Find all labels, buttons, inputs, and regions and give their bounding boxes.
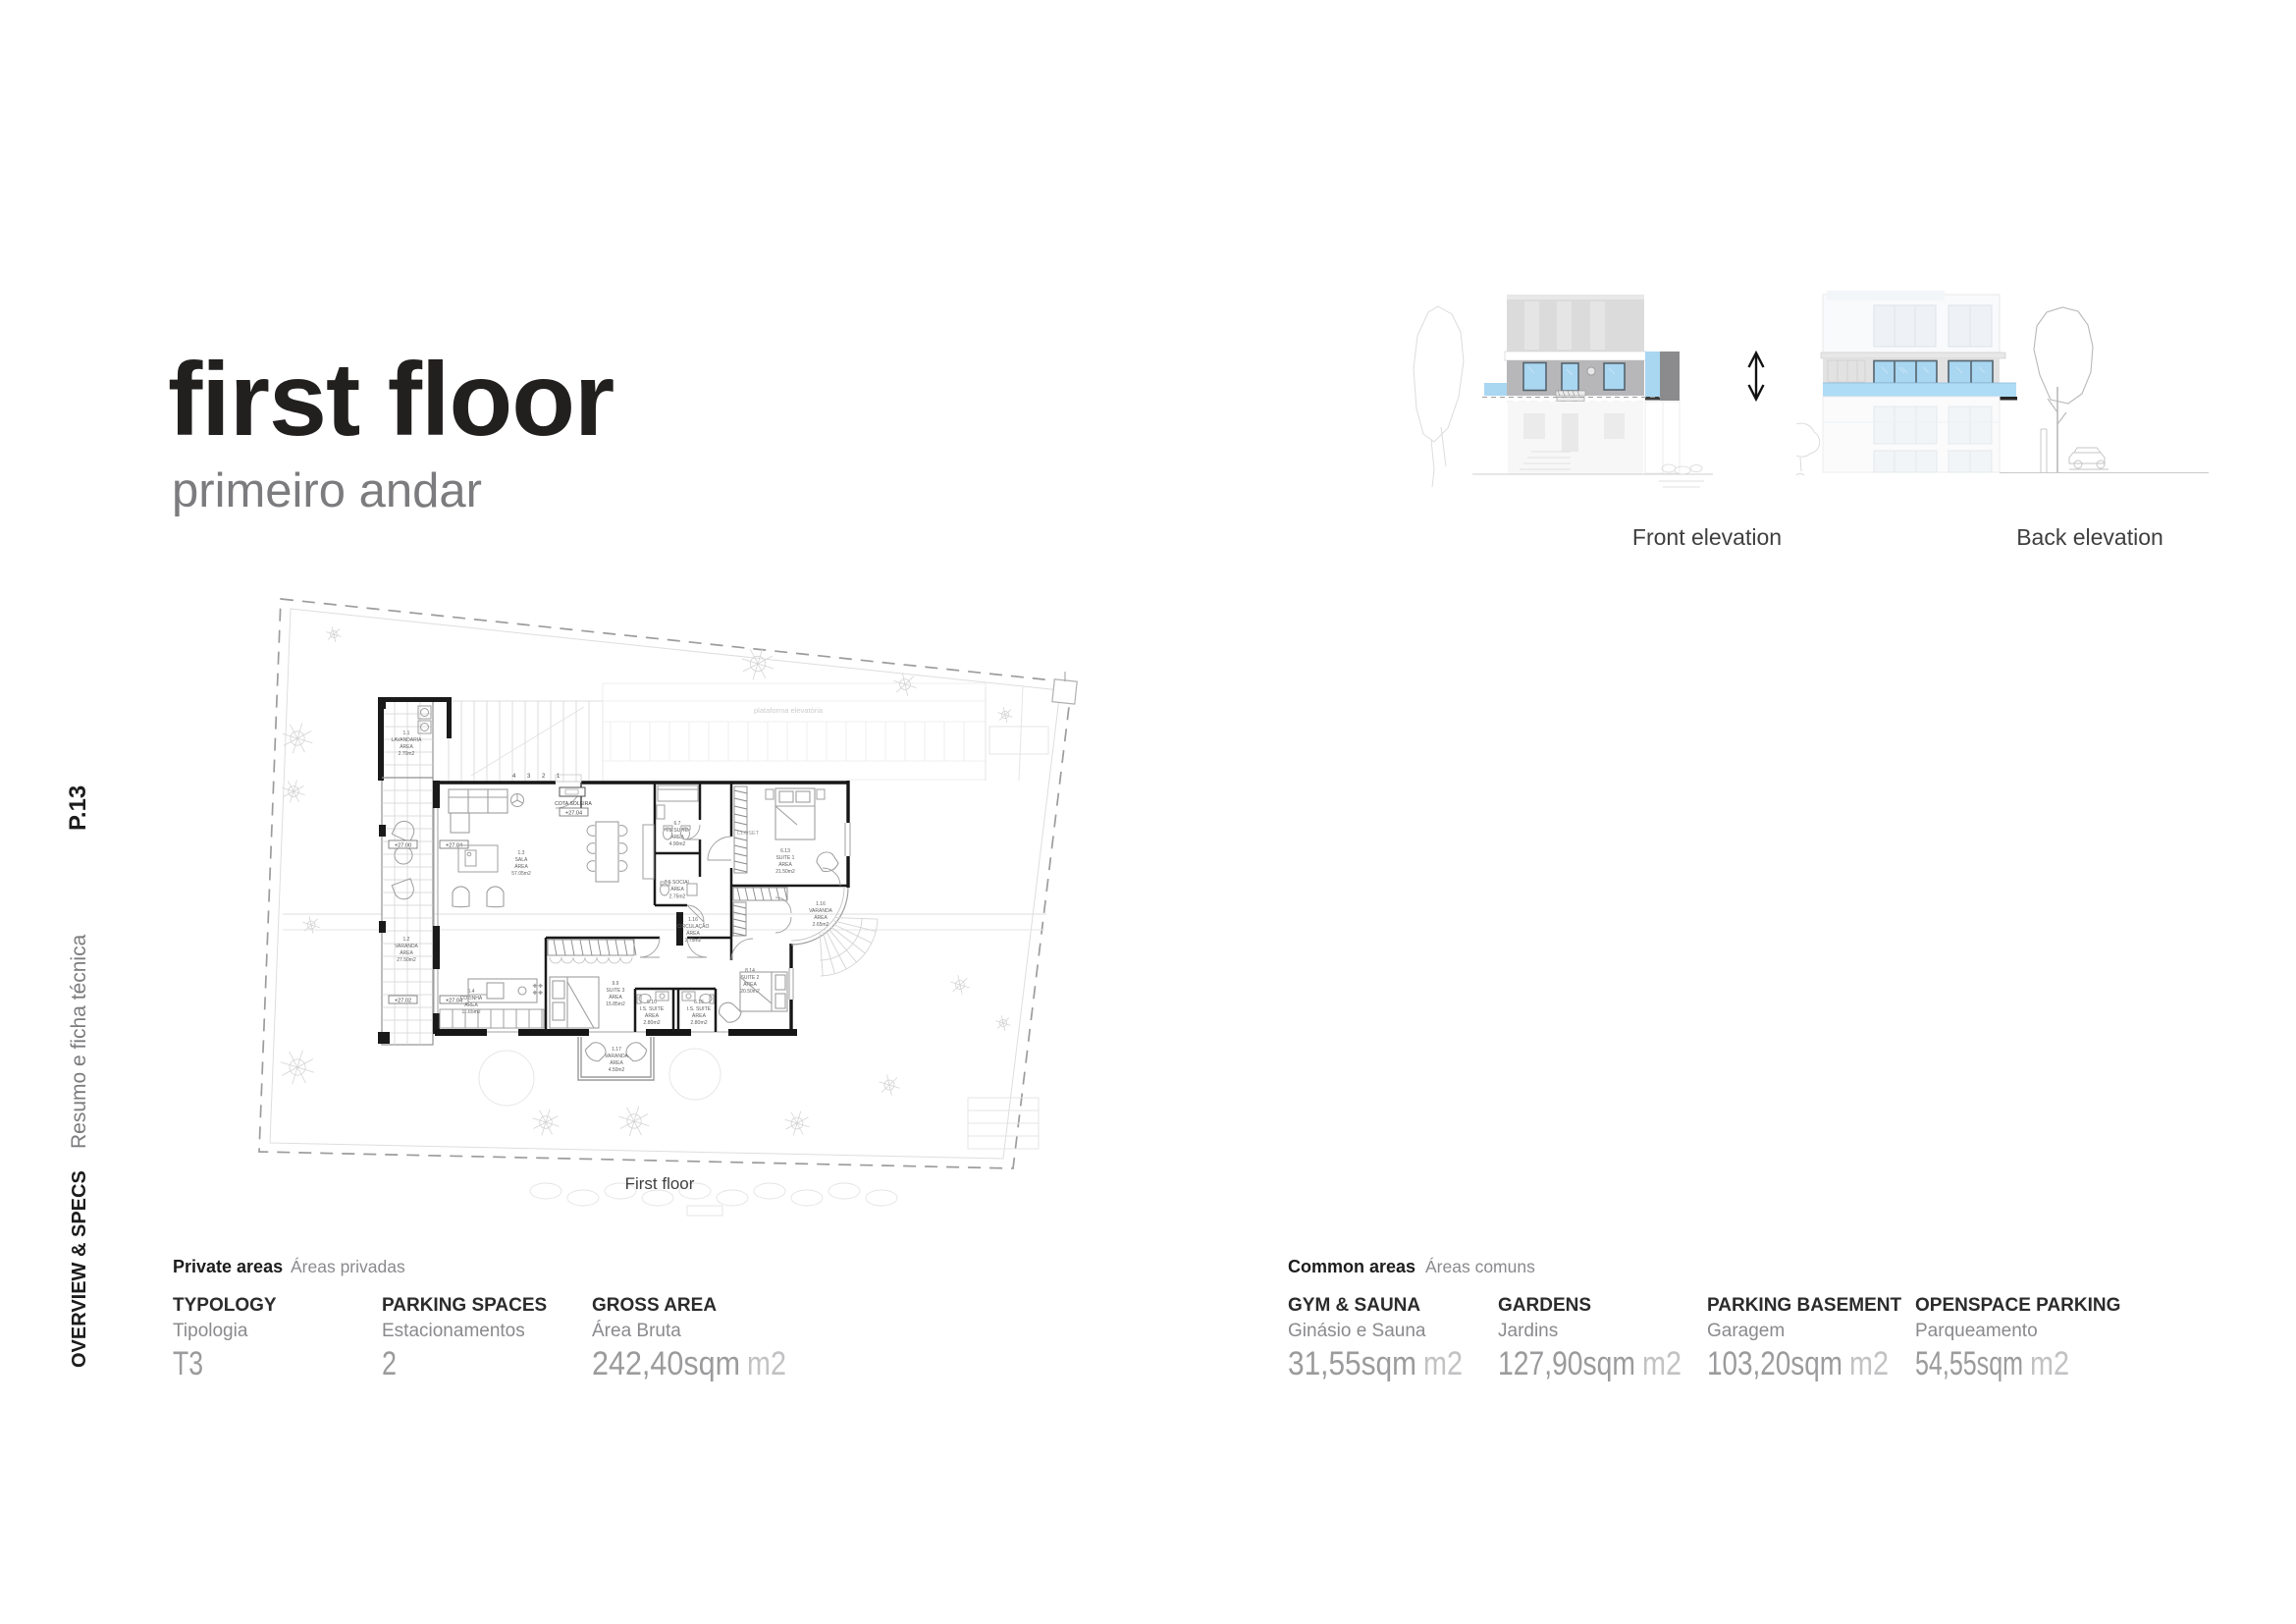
svg-text:COZINHA: COZINHA	[460, 996, 483, 1001]
svg-text:GROSS AREA: GROSS AREA	[592, 1295, 717, 1316]
svg-text:6.7: 6.7	[674, 821, 681, 827]
svg-text:ÁREA: ÁREA	[670, 886, 684, 893]
svg-text:SUITE 3: SUITE 3	[607, 988, 625, 994]
svg-text:Tipologia: Tipologia	[173, 1321, 248, 1341]
svg-text:2.80m2: 2.80m2	[643, 1020, 660, 1026]
svg-text:Áreas privadas: Áreas privadas	[291, 1257, 405, 1276]
svg-text:ÁREA: ÁREA	[778, 861, 792, 868]
svg-text:m2: m2	[1642, 1345, 1682, 1382]
svg-text:+ +: + +	[533, 990, 543, 997]
svg-text:m2: m2	[747, 1345, 786, 1382]
svg-text:PARKING SPACES: PARKING SPACES	[382, 1295, 547, 1316]
svg-text:2: 2	[382, 1345, 397, 1382]
svg-text:+27.02: +27.02	[395, 998, 411, 1003]
svg-text:VARANDA: VARANDA	[395, 944, 418, 949]
svg-text:8.14: 8.14	[745, 968, 755, 974]
svg-text:27.50m2: 27.50m2	[397, 957, 416, 963]
svg-text:first floor: first floor	[168, 342, 614, 458]
svg-text:First floor: First floor	[625, 1174, 695, 1193]
svg-text:VARANDA: VARANDA	[605, 1054, 628, 1059]
svg-text:OVERVIEW & SPECS: OVERVIEW & SPECS	[69, 1170, 90, 1368]
svg-text:4.90m2: 4.90m2	[669, 841, 686, 847]
svg-text:COTA SOLEIRA: COTA SOLEIRA	[555, 801, 592, 807]
svg-text:Front elevation: Front elevation	[1632, 524, 1782, 550]
svg-text:ÁREA: ÁREA	[645, 1012, 660, 1019]
svg-text:ÁREA: ÁREA	[670, 834, 684, 840]
svg-text:2.80m2: 2.80m2	[690, 1020, 707, 1026]
svg-text:2.65m2: 2.65m2	[813, 922, 829, 928]
svg-text:P.13: P.13	[65, 785, 91, 831]
svg-text:ÁREA: ÁREA	[686, 930, 700, 937]
svg-text:31,55sqm: 31,55sqm	[1288, 1345, 1416, 1382]
svg-text:OPENSPACE PARKING: OPENSPACE PARKING	[1915, 1295, 2120, 1316]
svg-text:Resumo e ficha técnica: Resumo e ficha técnica	[68, 934, 90, 1149]
svg-text:LAVANDARIA: LAVANDARIA	[392, 737, 423, 743]
svg-text:+ +: + +	[533, 983, 543, 990]
svg-text:127,90sqm: 127,90sqm	[1498, 1345, 1635, 1382]
svg-text:Private areas: Private areas	[173, 1257, 283, 1276]
svg-text:ÁREA: ÁREA	[692, 1012, 707, 1019]
svg-text:ÁREA: ÁREA	[610, 1059, 623, 1066]
svg-text:Parqueamento: Parqueamento	[1915, 1321, 2038, 1341]
svg-text:ÁREA: ÁREA	[400, 949, 413, 956]
svg-text:Back elevation: Back elevation	[2016, 524, 2163, 550]
svg-text:I.S. SUITE: I.S. SUITE	[687, 1006, 712, 1012]
svg-text:VARANDA: VARANDA	[809, 908, 832, 914]
svg-text:1.16: 1.16	[816, 901, 826, 907]
svg-text:PARKING BASEMENT: PARKING BASEMENT	[1707, 1295, 1901, 1316]
svg-text:2.75m2: 2.75m2	[669, 893, 686, 899]
svg-text:1.3: 1.3	[518, 850, 525, 856]
svg-text:1.1: 1.1	[403, 731, 410, 736]
svg-text:103,20sqm: 103,20sqm	[1707, 1345, 1842, 1382]
svg-text:m2: m2	[1849, 1345, 1889, 1382]
svg-text:1.17: 1.17	[612, 1047, 621, 1053]
svg-text:TYPOLOGY: TYPOLOGY	[173, 1295, 277, 1316]
svg-text:ÁREA: ÁREA	[814, 914, 828, 921]
svg-text:I.S. SUITE: I.S. SUITE	[640, 1006, 665, 1012]
svg-text:4 3 2 1: 4 3 2 1	[512, 774, 564, 780]
svg-text:15.85m2: 15.85m2	[606, 1001, 625, 1007]
svg-text:ÁREA: ÁREA	[514, 863, 528, 870]
svg-text:ÁREA: ÁREA	[609, 994, 622, 1001]
svg-text:Jardins: Jardins	[1498, 1321, 1558, 1341]
svg-text:Ginásio e Sauna: Ginásio e Sauna	[1288, 1321, 1426, 1341]
svg-text:6.4: 6.4	[468, 989, 475, 995]
svg-text:54,55sqm: 54,55sqm	[1915, 1345, 2023, 1382]
svg-text:21.50m2: 21.50m2	[775, 869, 795, 875]
svg-text:SALA: SALA	[515, 857, 528, 863]
svg-text:1.16: 1.16	[688, 917, 698, 923]
svg-text:57.05m2: 57.05m2	[511, 871, 531, 877]
svg-text:GYM & SAUNA: GYM & SAUNA	[1288, 1295, 1420, 1316]
svg-text:plataforma elevatória: plataforma elevatória	[754, 706, 824, 715]
svg-text:6.13: 6.13	[780, 848, 790, 854]
svg-text:Estacionamentos: Estacionamentos	[382, 1321, 525, 1341]
svg-text:9.9: 9.9	[613, 981, 619, 987]
svg-text:Common areas: Common areas	[1288, 1257, 1415, 1276]
svg-text:+27.04: +27.04	[565, 810, 582, 816]
svg-text:ÁREA: ÁREA	[400, 743, 413, 750]
svg-text:m2: m2	[1423, 1345, 1463, 1382]
svg-text:4.50m2: 4.50m2	[609, 1067, 625, 1073]
svg-text:m2: m2	[2030, 1345, 2069, 1382]
svg-text:Áreas comuns: Áreas comuns	[1425, 1257, 1535, 1276]
svg-text:primeiro andar: primeiro andar	[172, 464, 482, 517]
svg-text:242,40sqm: 242,40sqm	[592, 1345, 740, 1382]
svg-text:GARDENS: GARDENS	[1498, 1295, 1591, 1316]
svg-text:T3: T3	[173, 1345, 203, 1382]
svg-text:+27.00: +27.00	[395, 842, 411, 848]
svg-text:CIRCULAÇÃO: CIRCULAÇÃO	[677, 923, 710, 930]
svg-text:SUITE 1: SUITE 1	[776, 855, 795, 861]
svg-text:Garagem: Garagem	[1707, 1321, 1785, 1341]
svg-text:2.70m2: 2.70m2	[399, 751, 415, 757]
svg-text:1.2: 1.2	[403, 937, 410, 943]
svg-text:Área Bruta: Área Bruta	[592, 1321, 681, 1341]
